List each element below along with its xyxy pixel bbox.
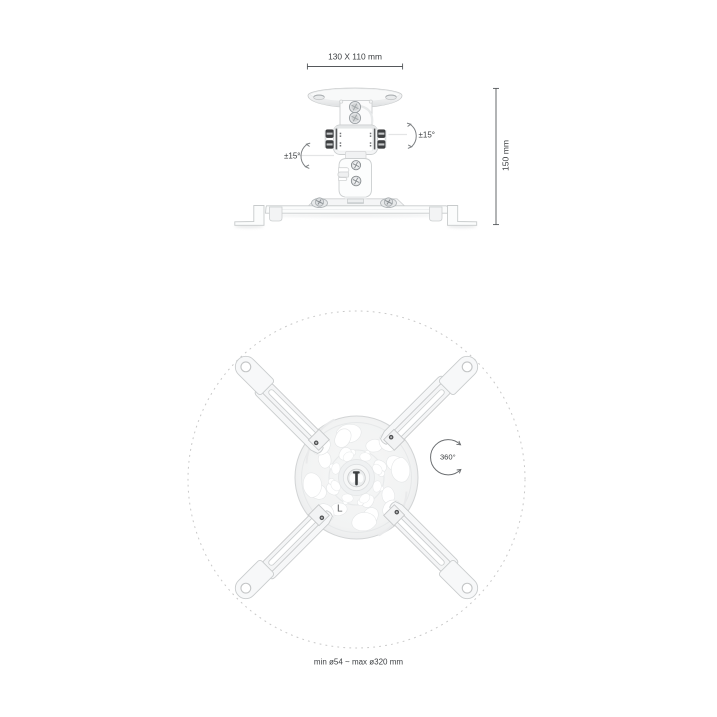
svg-text:130 X 110 mm: 130 X 110 mm	[328, 52, 382, 62]
svg-text:L: L	[337, 504, 343, 515]
svg-text:360°: 360°	[440, 453, 456, 462]
svg-text:±15°: ±15°	[419, 131, 436, 140]
svg-text:150 mm: 150 mm	[501, 140, 511, 171]
svg-text:±15°: ±15°	[284, 152, 301, 161]
svg-text:min ø54 ~ max ø320 mm: min ø54 ~ max ø320 mm	[314, 658, 403, 667]
